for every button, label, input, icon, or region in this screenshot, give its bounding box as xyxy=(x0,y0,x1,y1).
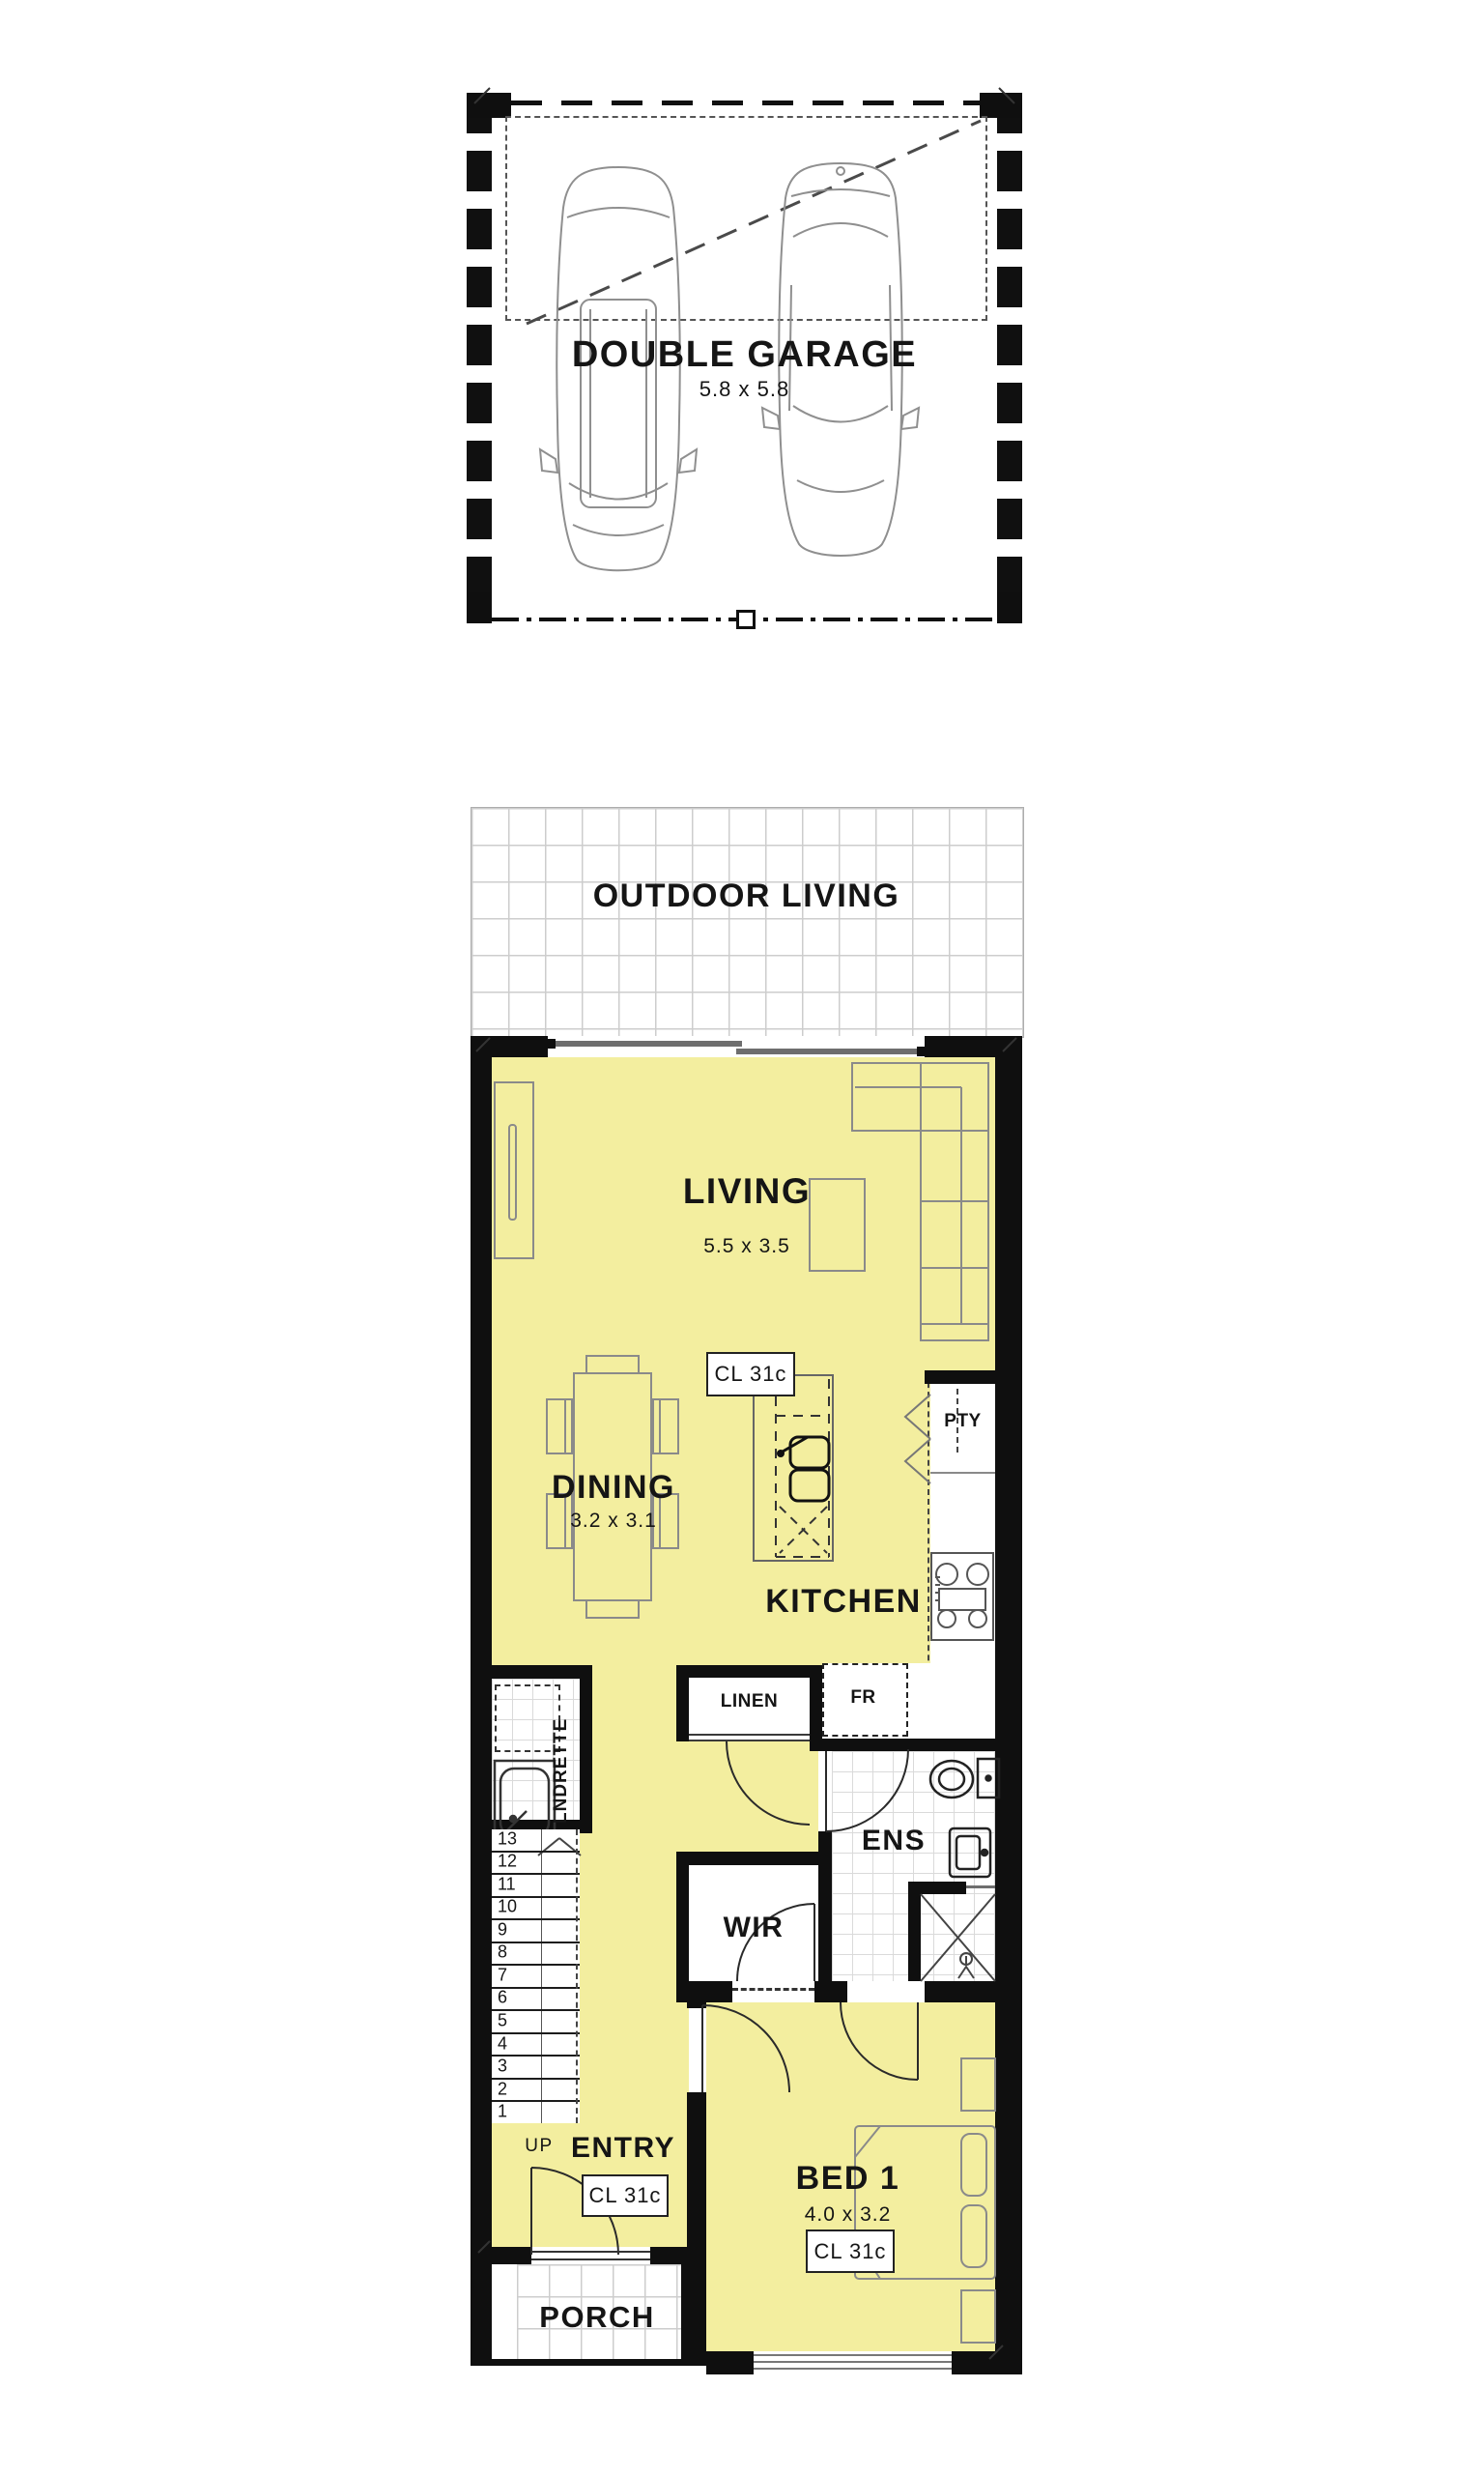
living-dims: 5.5 x 3.5 xyxy=(580,1235,914,1258)
floorplan-page: DOUBLE GARAGE 5.8 x 5.8 OUTDOOR LIVING xyxy=(0,0,1484,2474)
stair-tread-number: 10 xyxy=(498,1897,517,1917)
ensuite-bed-door xyxy=(841,2002,918,2080)
bed1-label: BED 1 xyxy=(763,2160,932,2198)
kitchen-label: KITCHEN xyxy=(667,1583,1020,1621)
ensuite-label: ENS xyxy=(826,1825,961,1857)
dining-dims: 3.2 x 3.1 xyxy=(464,1510,763,1533)
stair-tread-number: 8 xyxy=(498,1942,507,1963)
ensuite-door xyxy=(826,1749,908,1831)
stair-tread-number: 11 xyxy=(498,1874,516,1894)
bed1-ceiling-badge: CL 31c xyxy=(806,2229,895,2273)
stair-tread-number: 12 xyxy=(498,1852,517,1872)
stair-tread: 8 xyxy=(492,1943,580,1967)
stair-tread-number: 4 xyxy=(498,2033,507,2054)
entry-ceiling-badge: CL 31c xyxy=(582,2174,669,2217)
stair-tread: 12 xyxy=(492,1853,580,1876)
entry-label: ENTRY xyxy=(541,2132,705,2165)
linen-door-arc xyxy=(727,1741,810,1825)
dining-label: DINING xyxy=(464,1469,763,1507)
stair-tread: 11 xyxy=(492,1875,580,1898)
living-label: LIVING xyxy=(580,1171,914,1212)
shower-icon xyxy=(921,1894,995,1981)
stair-tread-number: 5 xyxy=(498,2011,507,2031)
outdoor-living-floor-tiles xyxy=(471,807,1024,1038)
corner-tick xyxy=(474,88,1014,103)
stair-tread: 10 xyxy=(492,1898,580,1921)
stair-tread: 4 xyxy=(492,2034,580,2057)
garage-dims: 5.8 x 5.8 xyxy=(467,377,1022,402)
window-glazing-lines xyxy=(754,2355,952,2369)
outdoor-living-label: OUTDOOR LIVING xyxy=(471,877,1022,915)
stair-tread-number: 2 xyxy=(498,2079,507,2099)
pantry-label: PTY xyxy=(930,1411,995,1432)
stair-tread: 2 xyxy=(492,2080,580,2103)
front-door-threshold xyxy=(531,2252,650,2259)
garage-title: DOUBLE GARAGE xyxy=(467,334,1022,376)
stair-tread-number: 9 xyxy=(498,1920,507,1941)
stairs: 13121110987654321 xyxy=(492,1829,580,2123)
tv-unit-icon xyxy=(495,1082,533,1258)
wir-label: WIR xyxy=(689,1912,818,1944)
porch-label: PORCH xyxy=(515,2300,679,2335)
linen-label: LINEN xyxy=(689,1691,810,1712)
stair-run-dashed-line xyxy=(576,1829,578,2123)
laundry-label: LNDRETTE xyxy=(551,1703,578,1838)
kitchen-island xyxy=(754,1375,833,1561)
stair-tread-number: 13 xyxy=(498,1828,517,1849)
stair-tread: 9 xyxy=(492,1920,580,1943)
stair-tread: 6 xyxy=(492,1989,580,2012)
stair-tread-number: 1 xyxy=(498,2102,507,2122)
bed1-dims: 4.0 x 3.2 xyxy=(763,2203,932,2227)
fridge-label: FR xyxy=(822,1687,904,1709)
stair-tread-number: 3 xyxy=(498,2057,507,2077)
stair-tread-number: 6 xyxy=(498,1988,507,2008)
stair-tread: 1 xyxy=(492,2102,580,2123)
living-ceiling-badge: CL 31c xyxy=(706,1352,795,1396)
garage-diagonal-dashed-line xyxy=(527,121,981,324)
toilet-icon xyxy=(930,1759,999,1798)
pantry-bifold-door xyxy=(905,1395,930,1483)
stair-tread: 3 xyxy=(492,2057,580,2080)
bed-icon xyxy=(855,2058,995,2343)
stair-tread: 7 xyxy=(492,1966,580,1989)
stair-tread-number: 7 xyxy=(498,1966,507,1986)
bed1-entry-door xyxy=(702,2005,789,2092)
stair-tread: 5 xyxy=(492,2011,580,2034)
